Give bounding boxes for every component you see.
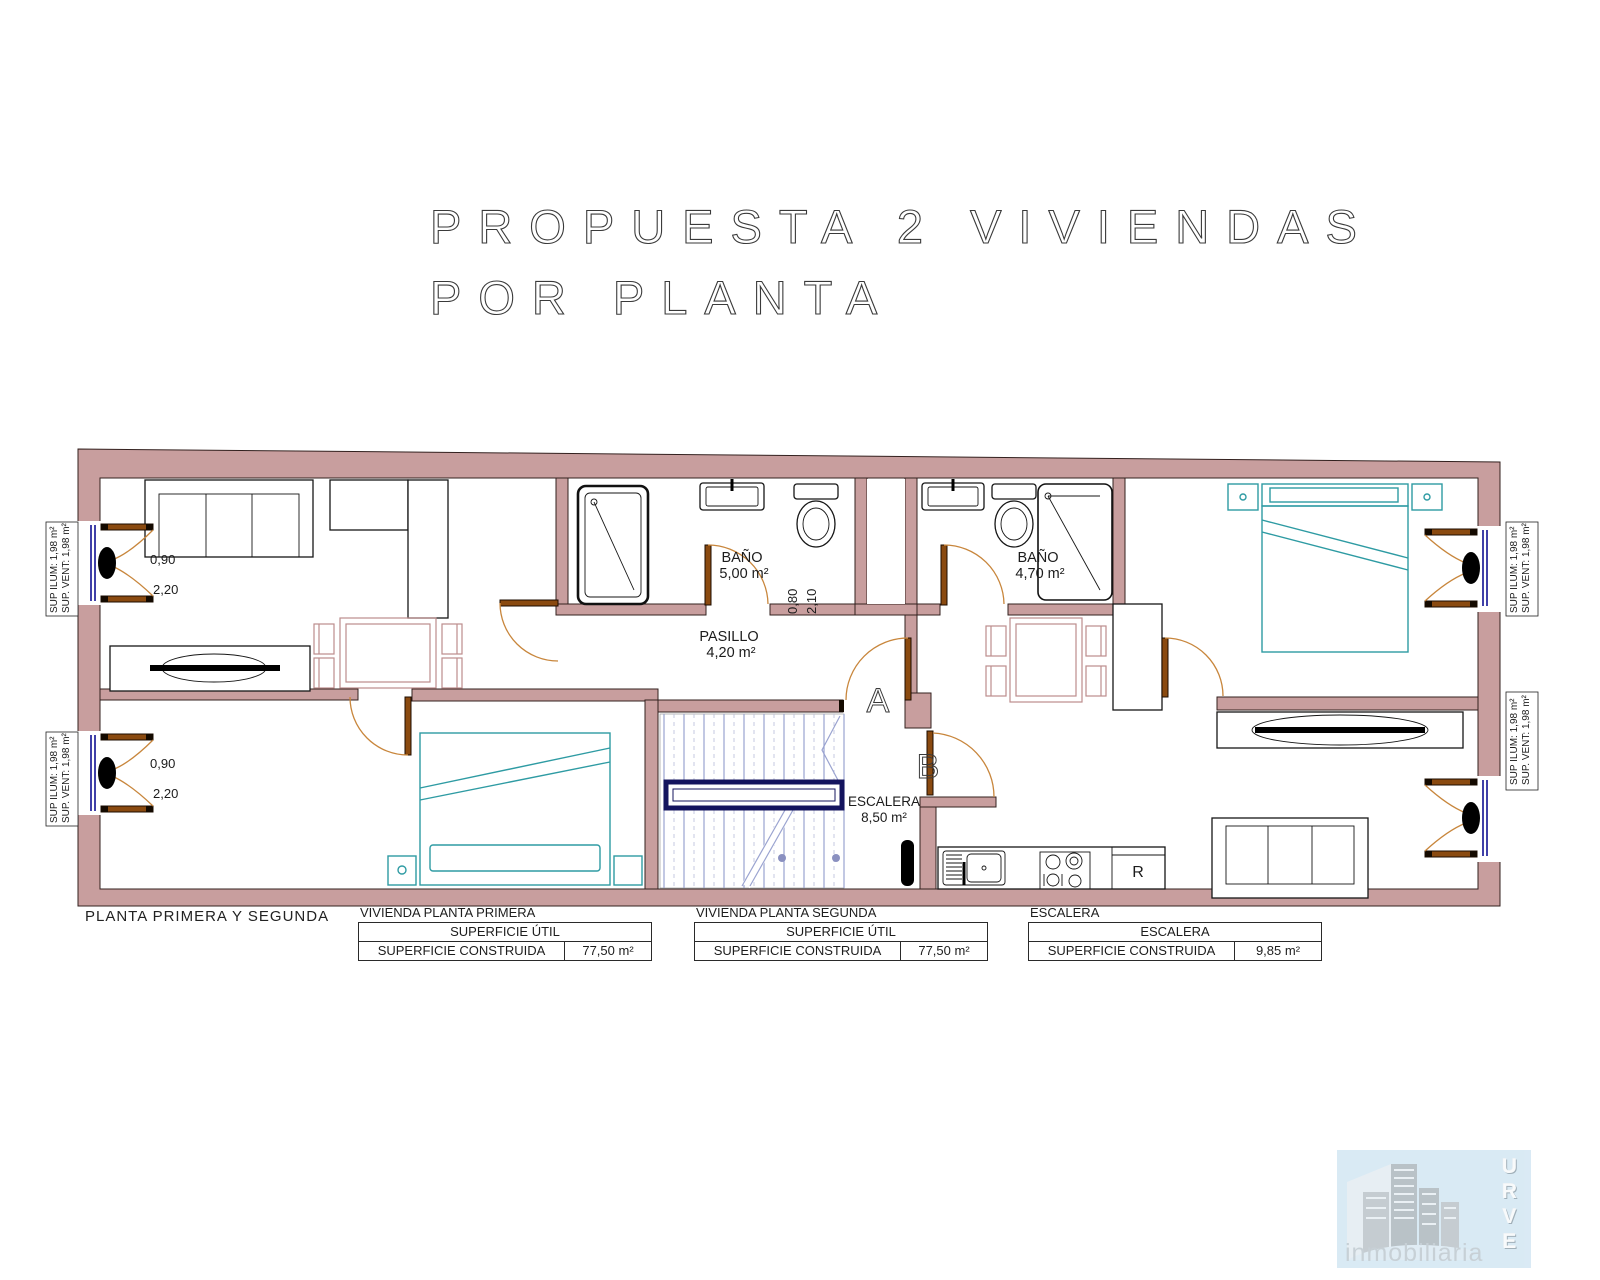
stairs-area: 8,50 m² (861, 810, 907, 825)
note-ilum: SUP ILUM: 1,98 m² (1509, 698, 1520, 785)
window-note-left-lower: SUP ILUM: 1,98 m² SUP. VENT: 1,98 m² (46, 732, 78, 826)
hall-area: 4,20 m² (706, 645, 755, 661)
table-header: SUPERFICIE ÚTIL (695, 923, 987, 942)
door-dim-height-upper: 2,20 (153, 582, 178, 597)
logo-letter-u: U (1502, 1154, 1517, 1179)
table-title: VIVIENDA PLANTA PRIMERA (360, 905, 652, 920)
note-vent: SUP. VENT: 1,98 m² (61, 522, 72, 613)
toilet-b (992, 484, 1036, 547)
table-title: VIVIENDA PLANTA SEGUNDA (696, 905, 988, 920)
table-row-label: SUPERFICIE CONSTRUIDA (359, 942, 565, 960)
tv-console-left (110, 646, 310, 691)
note-ilum: SUP ILUM: 1,98 m² (49, 736, 60, 823)
shower-b (1038, 484, 1112, 600)
bath-a-name: BAÑO (721, 549, 762, 566)
radiator (901, 840, 914, 886)
note-vent: SUP. VENT: 1,98 m² (1521, 694, 1532, 785)
table-escalera: ESCALERA ESCALERA SUPERFICIE CONSTRUIDA … (1028, 905, 1322, 961)
table-vivienda-segunda: VIVIENDA PLANTA SEGUNDA SUPERFICIE ÚTIL … (694, 905, 988, 961)
bath-door-dim-height: 2,10 (804, 589, 819, 614)
bath-b-area: 4,70 m² (1015, 566, 1064, 582)
stairs-name: ESCALERA (848, 794, 920, 809)
table-row-value: 77,50 m² (901, 942, 987, 960)
bed-right (1228, 484, 1442, 652)
tv-console-right (1217, 712, 1463, 748)
note-ilum: SUP ILUM: 1,98 m² (49, 526, 60, 613)
dining-set-left (314, 618, 462, 688)
table-vivienda-primera: VIVIENDA PLANTA PRIMERA SUPERFICIE ÚTIL … (358, 905, 652, 961)
sink-a (700, 479, 764, 510)
logo-letter-e: E (1502, 1229, 1517, 1254)
table-row-value: 77,50 m² (565, 942, 651, 960)
cabinet-left (330, 480, 408, 530)
door-bath-b (941, 545, 1004, 605)
door-dim-width-upper: 0,90 (150, 552, 175, 567)
table-header: SUPERFICIE ÚTIL (359, 923, 651, 942)
sink-b (922, 479, 984, 510)
sofa-right (1212, 818, 1368, 898)
door-living-hall (500, 600, 558, 661)
window-note-right-lower: SUP ILUM: 1,98 m² SUP. VENT: 1,98 m² (1506, 692, 1538, 790)
kitchen-counter: R (938, 847, 1165, 889)
table-header: ESCALERA (1029, 923, 1321, 942)
staircase (660, 714, 844, 888)
note-vent: SUP. VENT: 1,98 m² (1521, 522, 1532, 613)
bath-door-dim-width: 0,80 (785, 589, 800, 614)
bath-a-area: 5,00 m² (719, 566, 768, 582)
table-row-value: 9,85 m² (1235, 942, 1321, 960)
window-note-right-upper: SUP ILUM: 1,98 m² SUP. VENT: 1,98 m² (1506, 522, 1538, 616)
door-bedroom-left (350, 697, 411, 755)
logo-subtitle: inmobiliaria (1345, 1239, 1483, 1268)
bed-left (388, 733, 642, 885)
bath-b-name: BAÑO (1017, 549, 1058, 566)
floor-plan-drawing: R (0, 0, 1600, 1280)
table-row-label: SUPERFICIE CONSTRUIDA (1029, 942, 1235, 960)
table-row-label: SUPERFICIE CONSTRUIDA (695, 942, 901, 960)
shower-a (578, 486, 648, 604)
note-vent: SUP. VENT: 1,98 m² (61, 732, 72, 823)
door-dim-height-lower: 2,20 (153, 786, 178, 801)
closet-right (1113, 604, 1162, 710)
note-ilum: SUP ILUM: 1,98 m² (1509, 526, 1520, 613)
door-dim-width-lower: 0,90 (150, 756, 175, 771)
sofa-left (145, 480, 313, 557)
door-bedroom-right (1162, 638, 1223, 697)
stair-handrail (666, 782, 842, 808)
plan-caption: PLANTA PRIMERA Y SEGUNDA (85, 908, 329, 925)
unit-a-letter: A (867, 682, 890, 720)
closet-left (408, 480, 448, 618)
dining-set-right (986, 618, 1106, 702)
urve-logo: U R V E inmobiliaria (1337, 1150, 1531, 1268)
logo-letter-v: V (1502, 1204, 1517, 1229)
toilet-a (794, 484, 838, 547)
right-apartment-furniture: R (901, 484, 1463, 898)
floor-plan-sheet: PROPUESTA 2 VIVIENDAS POR PLANTA (0, 0, 1600, 1280)
unit-b-letter: B (917, 748, 940, 786)
logo-letters: U R V E (1502, 1154, 1517, 1254)
table-title: ESCALERA (1030, 905, 1322, 920)
logo-letter-r: R (1502, 1179, 1517, 1204)
window-note-left-upper: SUP ILUM: 1,98 m² SUP. VENT: 1,98 m² (46, 522, 78, 616)
fridge-label: R (1132, 864, 1144, 881)
hall-name: PASILLO (699, 629, 758, 645)
